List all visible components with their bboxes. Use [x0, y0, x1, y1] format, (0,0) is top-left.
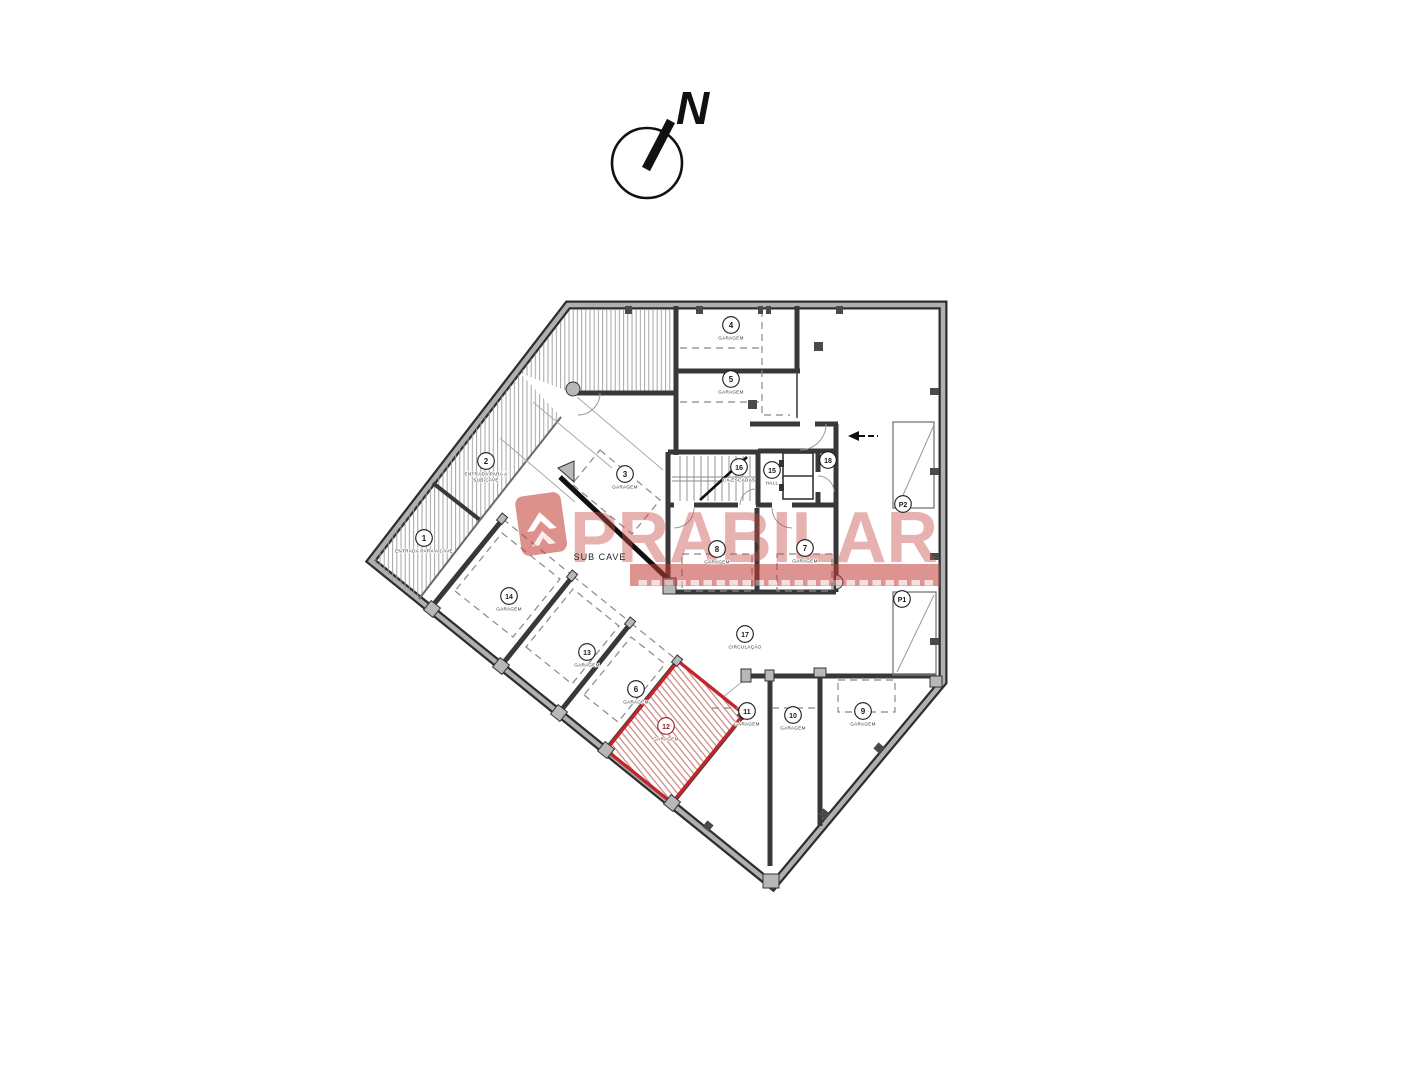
room-name: GARAGEM: [623, 700, 649, 705]
floorplan-page: N: [0, 0, 1426, 1080]
room-number: P1: [898, 597, 907, 604]
room-number: P2: [899, 502, 908, 509]
room-name: GARAGEM: [734, 722, 760, 727]
room-name: ENTRADA PARA A: [464, 472, 508, 477]
room-number: 9: [861, 707, 866, 716]
ramp-area-top: [520, 310, 676, 393]
north-indicator: N: [612, 82, 710, 198]
floor-plan: N: [0, 0, 1426, 1080]
room-number: 1: [422, 534, 427, 543]
room-label-18: 18: [820, 452, 837, 469]
room-label-P2: P2: [895, 496, 912, 513]
watermark: PRABILAR: [514, 491, 940, 586]
room-name: GARAGEM: [792, 559, 818, 564]
room-number: 10: [789, 713, 797, 720]
room-name: GARAGEM: [850, 722, 876, 727]
room-label-P1: P1: [894, 591, 911, 608]
room-number: 3: [623, 470, 628, 479]
room-name: CX ESCADAS: [723, 478, 756, 483]
room-name: SUB-CAVE: [473, 478, 499, 483]
room-name: GARAGEM: [718, 336, 744, 341]
room-name: GARAGEM: [612, 485, 638, 490]
watermark-band-text: [634, 564, 936, 586]
room-number: 5: [729, 375, 734, 384]
room-number: 16: [735, 465, 743, 472]
room-name: GARAGEM: [704, 560, 730, 565]
room-name: GARAGEM: [780, 726, 806, 731]
room-name: GARAGEM: [574, 663, 600, 668]
room-name: HALL: [766, 481, 779, 486]
room-name: CIRCULAÇÃO: [728, 644, 761, 650]
room-name: ENTRADA PARA A CAVE: [395, 549, 453, 554]
watermark-logo: [514, 491, 568, 557]
area-label: SUB CAVE: [574, 552, 627, 562]
room-name: GARAGEM: [653, 737, 679, 742]
room-number: 17: [741, 632, 749, 639]
room-number: 14: [505, 594, 513, 601]
north-label: N: [676, 82, 710, 134]
elevator: [779, 453, 813, 499]
room-number: 4: [729, 321, 734, 330]
room-name: GARAGEM: [496, 607, 522, 612]
room-number: 15: [768, 468, 776, 475]
room-name: GARAGEM: [718, 390, 744, 395]
room-number: 8: [715, 545, 720, 554]
room-number: 18: [824, 458, 832, 465]
room-number: 12: [662, 724, 670, 731]
room-number: 7: [803, 544, 808, 553]
room-number: 11: [743, 709, 751, 716]
room-number: 6: [634, 685, 639, 694]
room-number: 13: [583, 650, 591, 657]
room-number: 2: [484, 457, 489, 466]
room-label-15: 15HALL: [764, 462, 781, 486]
